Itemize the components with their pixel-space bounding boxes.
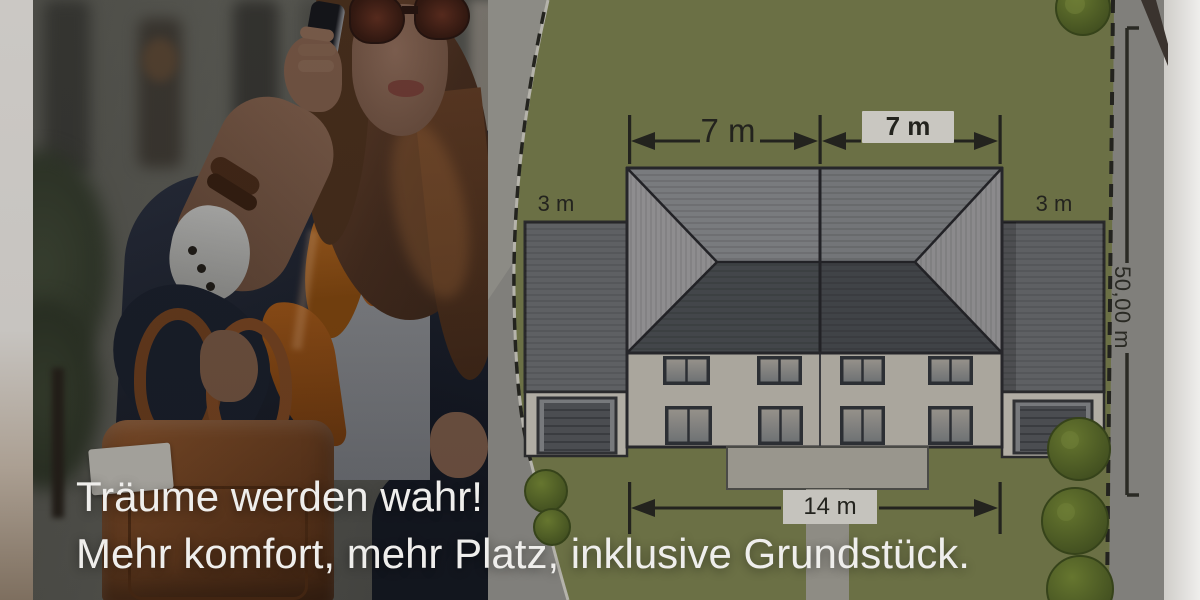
ad-banner: 7 m 7 m 3 m 3 m 14 m 50,00 m Träume werd… (0, 0, 1200, 600)
dimension-label-left-garage: 3 m (532, 192, 580, 215)
duplex-facade (627, 353, 1002, 447)
headline-line2: Mehr komfort, mehr Platz, inklusive Grun… (76, 525, 970, 582)
bushes-bottom-right (1042, 418, 1113, 600)
dimension-label-left-unit: 7 m (690, 114, 766, 149)
image-edge-right (1164, 0, 1200, 600)
duplex-roof (627, 168, 1002, 353)
garage-door (544, 403, 610, 452)
dimension-label-right-garage: 3 m (1030, 192, 1078, 215)
headline: Träume werden wahr! Mehr komfort, mehr P… (76, 468, 970, 582)
dimension-label-right-unit: 7 m (862, 111, 954, 143)
image-edge-left (0, 0, 33, 600)
garage-left (525, 222, 627, 456)
dimension-label-plot-depth: 50,00 m (1108, 266, 1134, 358)
headline-line1: Träume werden wahr! (76, 468, 970, 525)
